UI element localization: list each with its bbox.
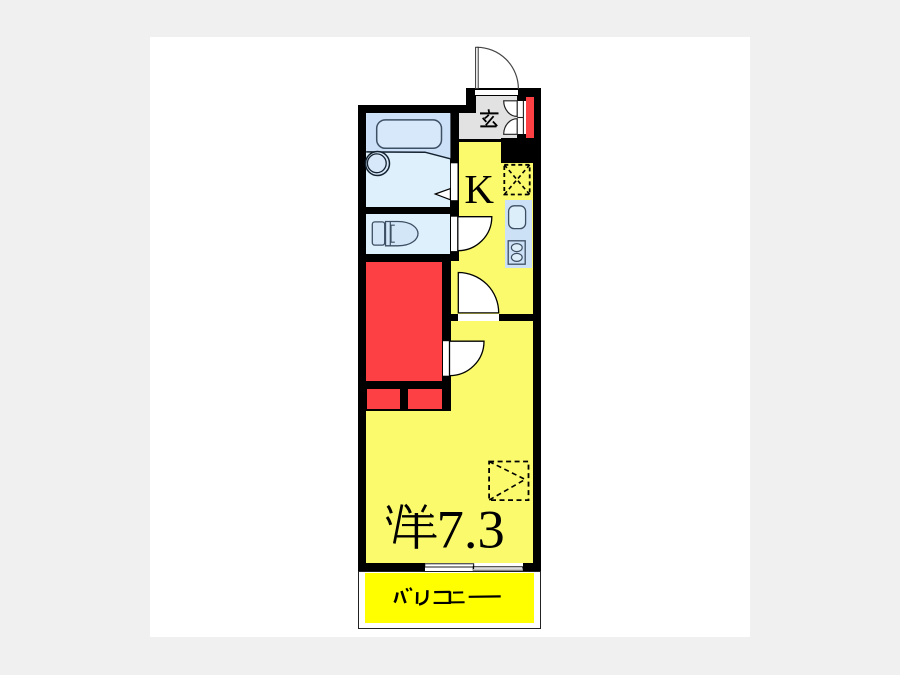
svg-text:7.3: 7.3 <box>437 498 505 559</box>
svg-text:K: K <box>464 166 494 212</box>
